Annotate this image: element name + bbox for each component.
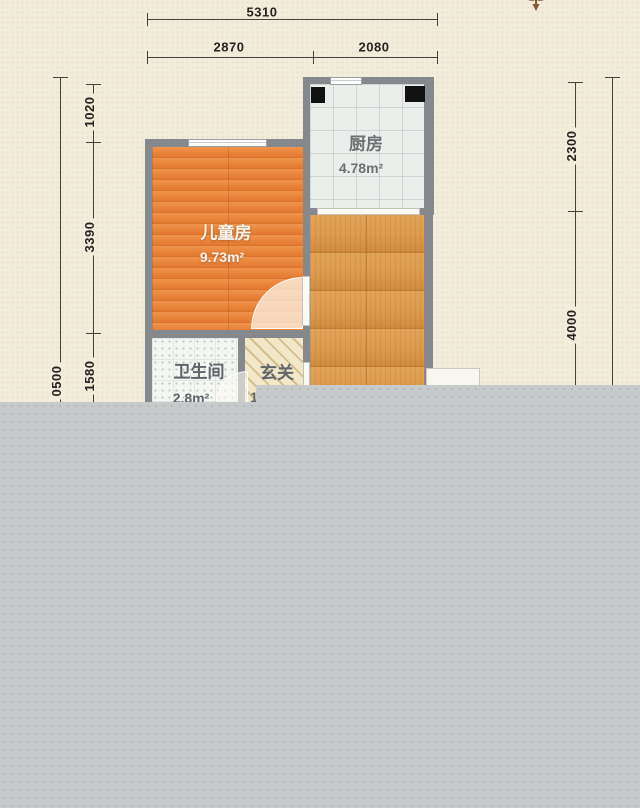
dim-tick [568, 82, 583, 83]
dim-label-total-width: 5310 [247, 5, 278, 20]
dim-label-left-1: 1020 [83, 94, 97, 131]
dim-label-left-3: 1580 [83, 358, 97, 395]
dim-label-right-1: 2300 [565, 128, 579, 165]
dim-tick [147, 51, 148, 64]
dim-label-left-outer: 0500 [50, 363, 64, 400]
kitchen-label: 厨房 [349, 130, 383, 155]
dim-tick [86, 84, 101, 85]
kids-room-window [188, 139, 267, 147]
kitchen-fixture [405, 86, 425, 102]
dim-label-top-left: 2870 [214, 40, 245, 55]
kitchen-area: 4.78m² [339, 160, 383, 176]
gray-overlay [256, 385, 640, 403]
kitchen-fixture [311, 87, 325, 103]
dim-tick [53, 77, 68, 78]
kids-room-label: 儿童房 [201, 219, 252, 244]
dim-tick [313, 51, 314, 64]
dim-line-left-outer [60, 77, 61, 402]
dim-line-right-outer [612, 77, 613, 402]
dim-tick [147, 13, 148, 26]
kitchen-window [330, 77, 362, 85]
dim-label-left-2: 3390 [83, 219, 97, 256]
dim-label-right-2: 4000 [565, 307, 579, 344]
floor-plan: 5310 2870 2080 0500 1020 3390 1580 2300 … [0, 0, 640, 808]
bathroom-label: 卫生间 [174, 358, 225, 383]
kitchen-door-opening [317, 208, 420, 215]
kids-room-door-leaf [302, 276, 310, 326]
dim-label-top-right: 2080 [359, 40, 390, 55]
fleur-ornament-icon [522, 0, 550, 11]
bathroom-left-wall [145, 338, 152, 402]
dim-tick [86, 333, 101, 334]
entry-label: 玄关 [260, 359, 294, 384]
kids-room-area: 9.73m² [200, 249, 244, 265]
dim-tick [568, 211, 583, 212]
dim-line-total-width [147, 19, 437, 20]
dim-line-top-segments [147, 57, 437, 58]
gray-overlay [0, 402, 640, 808]
corridor-floor [310, 215, 424, 402]
dim-tick [86, 142, 101, 143]
dim-tick [605, 77, 620, 78]
dim-tick [437, 51, 438, 64]
dim-tick [437, 13, 438, 26]
bathroom-top-wall [145, 330, 310, 338]
